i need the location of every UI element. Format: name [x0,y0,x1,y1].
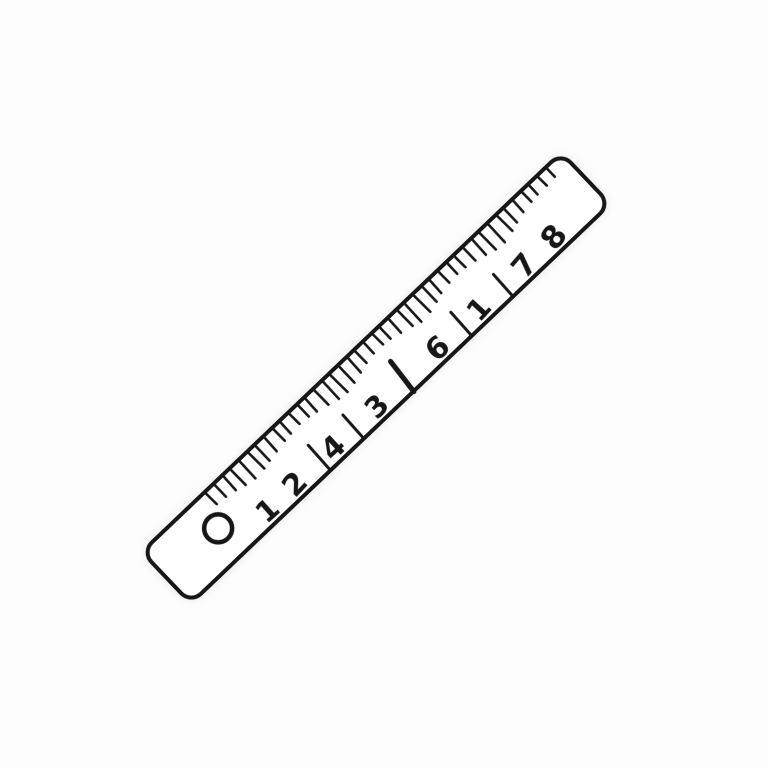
ruler-drawing: 12436178 [138,149,613,607]
illustration-canvas: 12436178 [0,0,768,768]
ruler: 12436178 [138,149,613,607]
ruler-body-outline [142,153,610,604]
